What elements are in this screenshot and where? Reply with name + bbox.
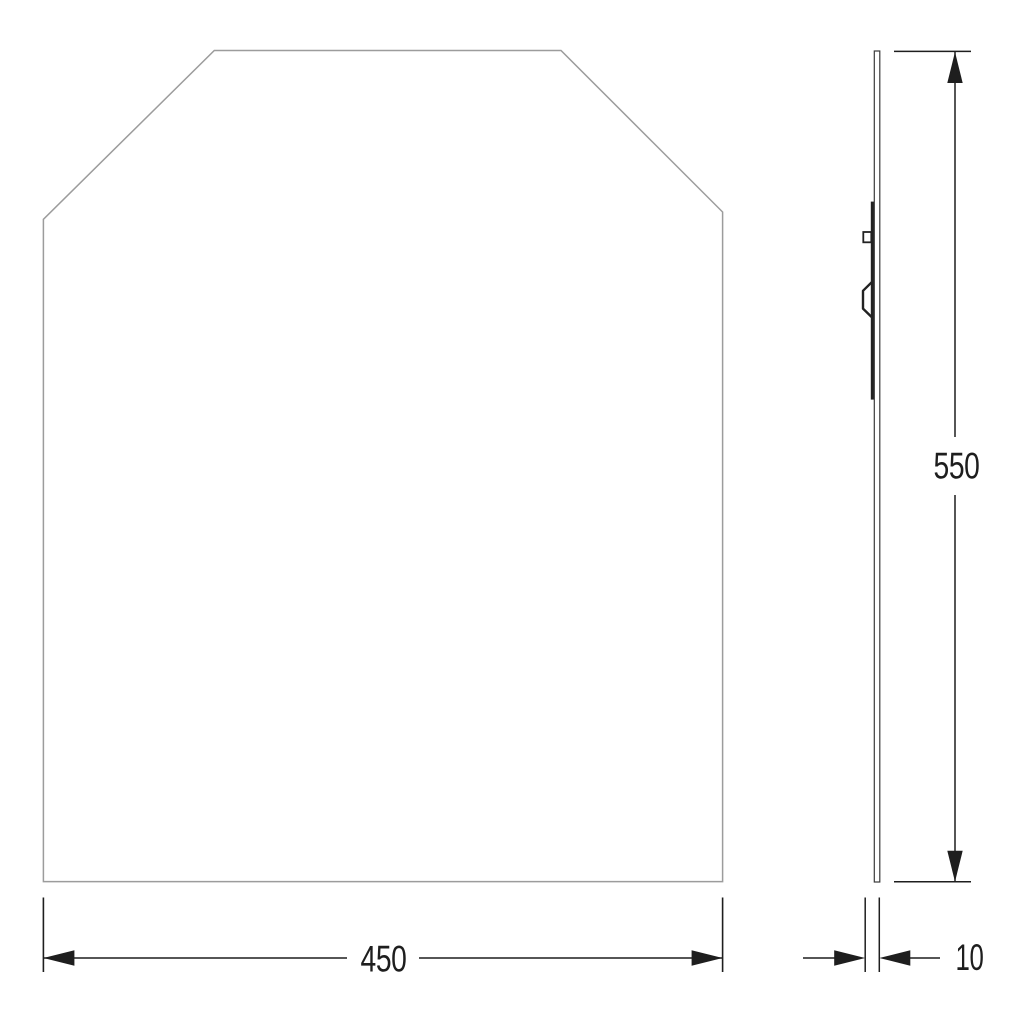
width-arrowhead-right (692, 950, 723, 965)
side-view-panel (874, 51, 880, 882)
depth-arrowhead-left (834, 950, 865, 965)
height-dimension-label: 550 (934, 446, 980, 487)
height-arrowhead-bottom (947, 851, 962, 882)
dimension-height: 550 (894, 51, 980, 881)
width-dimension-label: 450 (361, 939, 407, 980)
front-view (43, 51, 722, 882)
width-arrowhead-left (43, 950, 74, 965)
front-view-outline (43, 51, 722, 882)
technical-drawing-canvas: 450 550 10 (0, 0, 1024, 1024)
wall-hook-square (863, 232, 871, 242)
dimension-width: 450 (43, 898, 722, 980)
mirror-technical-drawing: 450 550 10 (0, 0, 1024, 1024)
hanging-bracket-hook (863, 282, 872, 317)
depth-arrowhead-right (879, 950, 910, 965)
mounting-rail (871, 202, 874, 400)
height-arrowhead-top (947, 52, 962, 83)
depth-dimension-label: 10 (956, 937, 984, 978)
side-view (863, 51, 880, 882)
dimension-depth: 10 (803, 898, 984, 979)
